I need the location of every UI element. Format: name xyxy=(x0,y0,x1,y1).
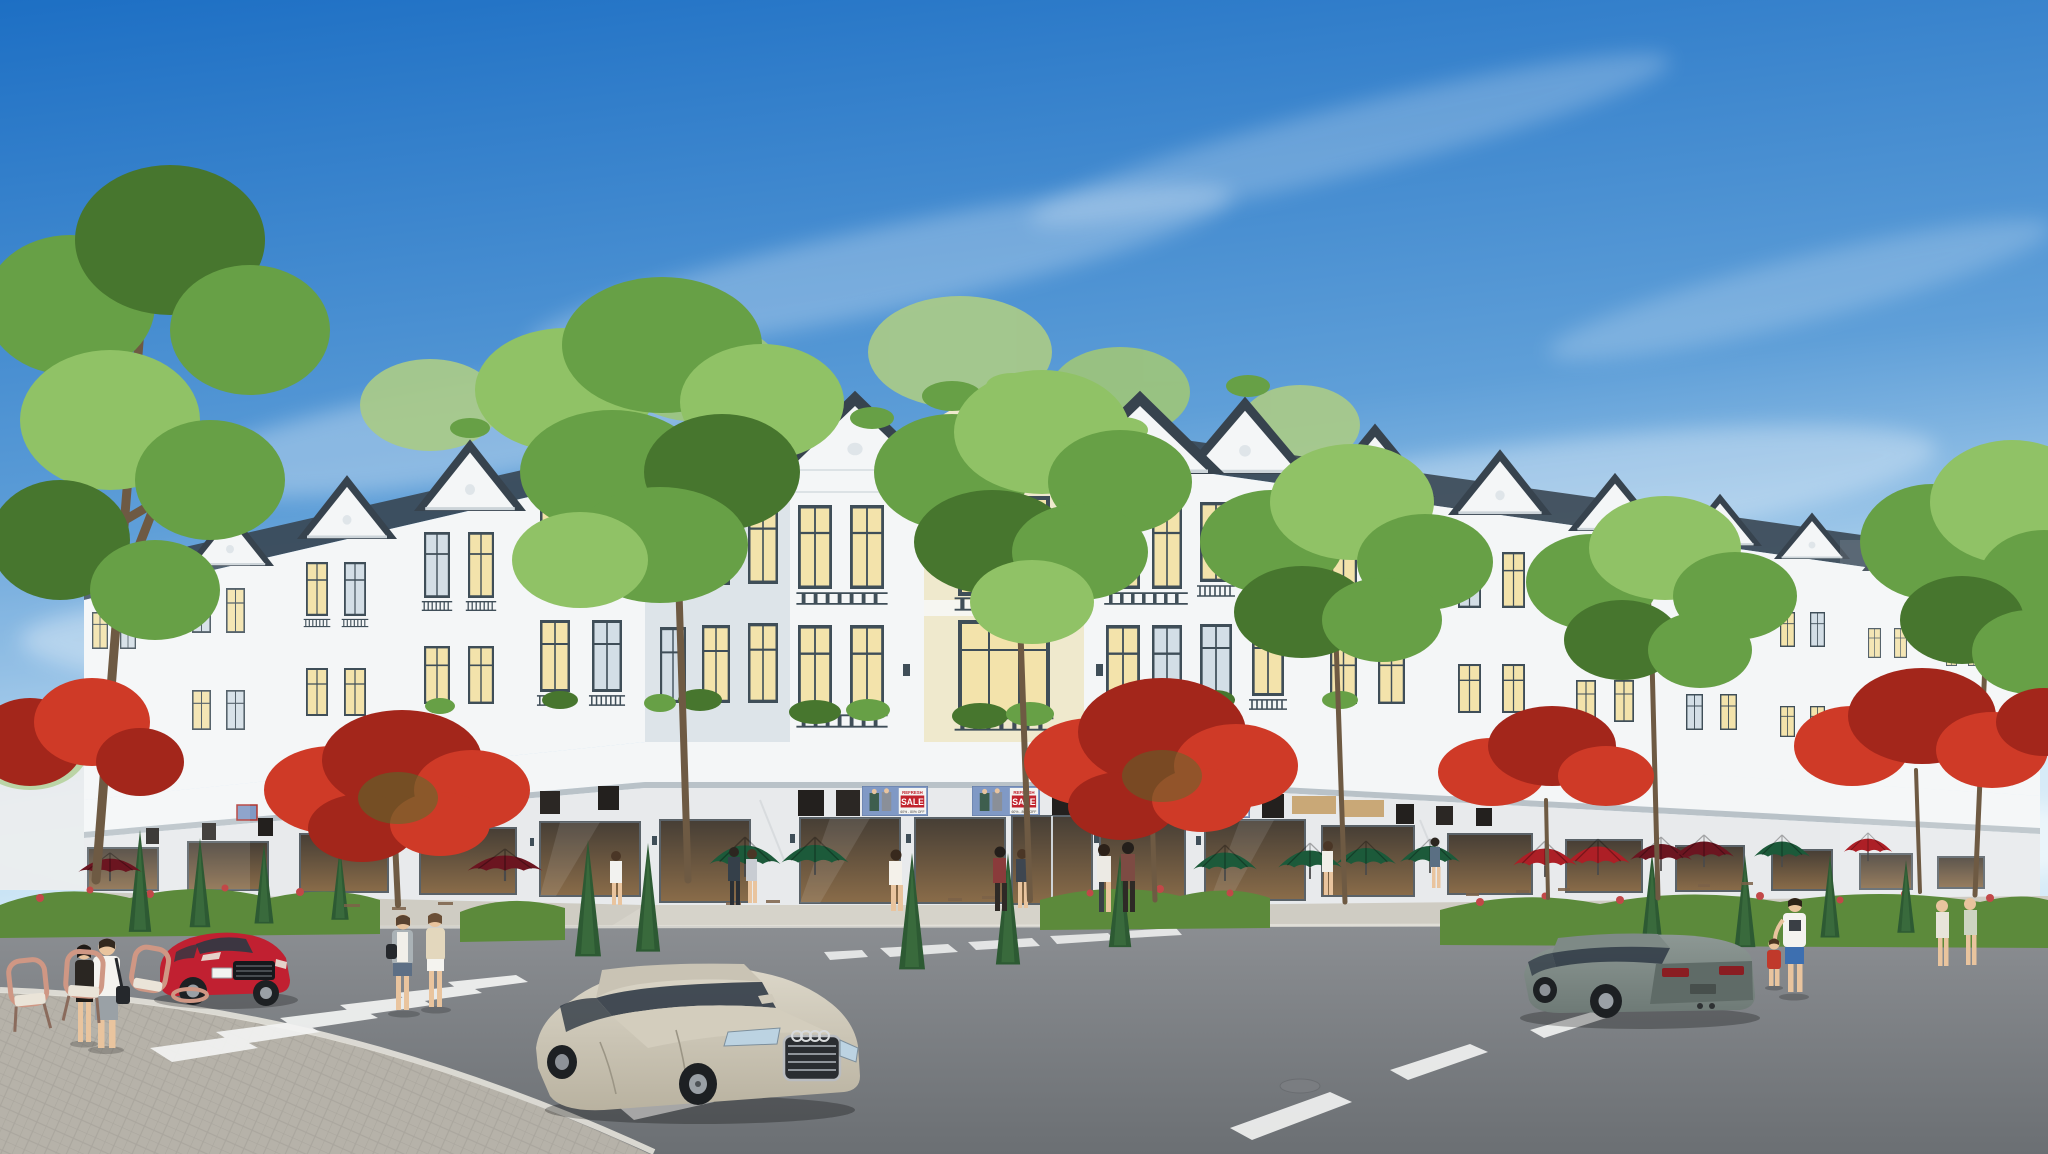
license-plate xyxy=(1690,984,1716,994)
bronze-shop-sign xyxy=(1344,800,1384,817)
turret-lantern xyxy=(1096,664,1103,676)
taillight xyxy=(1719,966,1744,975)
sale-banner xyxy=(862,786,928,816)
taillight xyxy=(1662,968,1689,977)
manhole-cover xyxy=(1280,1079,1320,1093)
bronze-shop-sign xyxy=(1292,796,1336,814)
turret-lantern xyxy=(903,664,910,676)
car-grey-liftback xyxy=(1520,934,1760,1030)
license-plate xyxy=(212,968,232,978)
shoulder-bag xyxy=(116,986,130,1004)
rendered-scene: REFRESH SALE 60% - 80% OFF xyxy=(0,0,2048,1154)
handbag xyxy=(386,944,397,959)
front-grille xyxy=(784,1036,840,1080)
scene-canvas: REFRESH SALE 60% - 80% OFF xyxy=(0,0,2048,1154)
